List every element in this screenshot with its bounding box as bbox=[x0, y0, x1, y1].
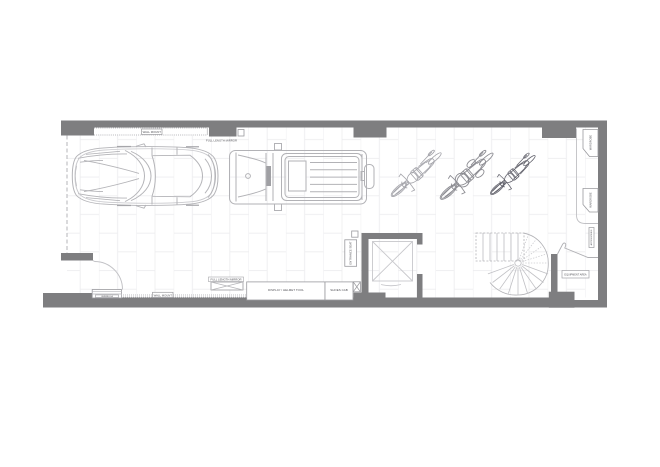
svg-text:SHOES CAB: SHOES CAB bbox=[330, 288, 348, 292]
svg-text:ACCESSORIES: ACCESSORIES bbox=[590, 229, 593, 245]
svg-text:FULL LENGTH MIRROR: FULL LENGTH MIRROR bbox=[206, 139, 237, 143]
svg-text:FULL LENGTH MIRROR: FULL LENGTH MIRROR bbox=[211, 278, 242, 282]
svg-text:DISPLAY / HELMET TOOL: DISPLAY / HELMET TOOL bbox=[268, 288, 304, 292]
svg-text:WALL MOUNT: WALL MOUNT bbox=[154, 293, 173, 297]
svg-text:WARDROBE: WARDROBE bbox=[589, 135, 593, 150]
svg-text:EQUIPMENT AREA: EQUIPMENT AREA bbox=[564, 274, 587, 277]
svg-text:ENTRANCE SEAT: ENTRANCE SEAT bbox=[349, 241, 353, 265]
svg-text:UMBRELLA: UMBRELLA bbox=[101, 295, 113, 298]
svg-text:WARDROBE: WARDROBE bbox=[589, 192, 593, 207]
svg-text:WALL MOUNT: WALL MOUNT bbox=[143, 130, 162, 134]
